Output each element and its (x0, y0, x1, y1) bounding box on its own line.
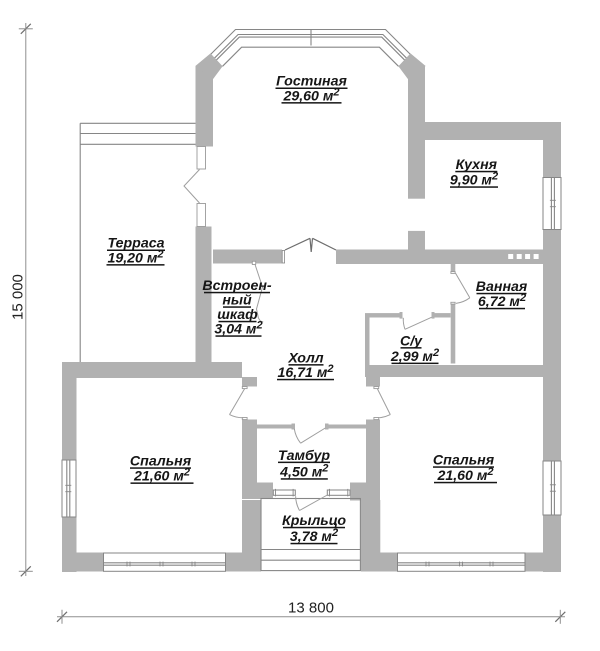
svg-text:13 800: 13 800 (288, 600, 334, 617)
svg-text:3,04 м2: 3,04 м2 (214, 320, 263, 338)
svg-text:С/у: С/у (400, 333, 423, 349)
svg-text:29,60 м2: 29,60 м2 (282, 86, 340, 104)
svg-text:21,60 м2: 21,60 м2 (133, 467, 191, 485)
svg-text:Спальня: Спальня (433, 453, 495, 469)
svg-text:Тамбур: Тамбур (278, 448, 330, 464)
svg-text:15 000: 15 000 (10, 274, 27, 320)
svg-text:19,20 м2: 19,20 м2 (107, 248, 164, 266)
svg-text:2,99 м2: 2,99 м2 (390, 347, 440, 365)
svg-text:9,90 м2: 9,90 м2 (450, 171, 499, 189)
svg-text:16,71 м2: 16,71 м2 (277, 363, 334, 381)
svg-text:Холл: Холл (287, 350, 323, 366)
svg-text:21,60 м2: 21,60 м2 (436, 466, 494, 484)
svg-text:3,78 м2: 3,78 м2 (290, 527, 339, 545)
svg-text:Терраса: Терраса (107, 236, 164, 252)
svg-text:6,72 м2: 6,72 м2 (478, 292, 527, 310)
svg-text:Спальня: Спальня (130, 454, 192, 470)
svg-text:4,50 м2: 4,50 м2 (279, 462, 329, 480)
